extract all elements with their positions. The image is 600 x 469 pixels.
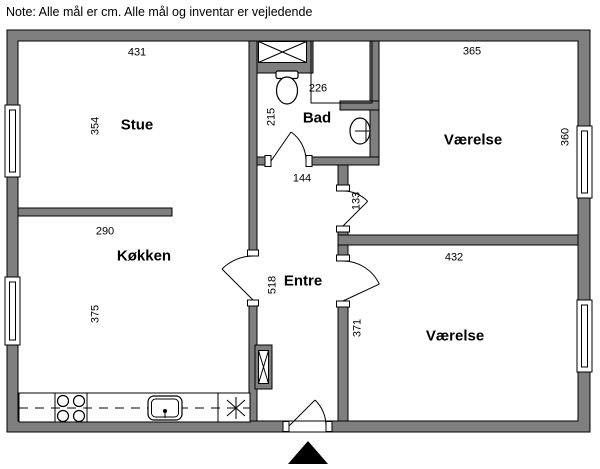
floor-plan-drawing xyxy=(0,0,600,469)
dim-entre-width: 144 xyxy=(293,174,311,185)
bathroom-sink-icon xyxy=(350,118,370,144)
toilet-icon xyxy=(276,71,298,104)
window-icon xyxy=(5,277,20,345)
dim-vaerelse-top-height: 360 xyxy=(561,128,572,146)
kitchen-sink-icon xyxy=(148,396,182,420)
dim-divider-wall: 290 xyxy=(96,227,114,238)
dim-vaerelse-bottom-height: 371 xyxy=(353,319,364,337)
dim-bad-height: 215 xyxy=(267,108,278,126)
dim-entre-length: 518 xyxy=(268,276,279,294)
room-label-kokken: Køkken xyxy=(117,249,171,264)
window-icon xyxy=(577,300,592,372)
room-bottom-door-arc xyxy=(343,261,379,301)
kitchen-counter xyxy=(19,393,250,422)
dim-stue-height: 354 xyxy=(91,117,102,135)
entrance-arrow-icon xyxy=(288,441,328,464)
duct-shaft-icon xyxy=(259,351,269,384)
dim-vaerelse-top-width: 365 xyxy=(463,47,481,58)
dim-kokken-height: 375 xyxy=(91,305,102,323)
room-label-entre: Entre xyxy=(284,274,322,289)
room-label-stue: Stue xyxy=(121,118,154,133)
room-label-bad: Bad xyxy=(303,111,331,126)
kitchen-door-arc xyxy=(222,256,253,300)
dim-vaerelse-bottom-width: 432 xyxy=(445,253,463,264)
floor-plan: Note: Alle mål er cm. Alle mål og invent… xyxy=(0,0,600,469)
bathroom-door-arc xyxy=(271,132,306,161)
window-icon xyxy=(577,126,592,198)
room-label-vaerelse-bottom: Værelse xyxy=(426,329,484,344)
note-text: Note: Alle mål er cm. Alle mål og invent… xyxy=(6,5,312,19)
room-label-vaerelse-top: Værelse xyxy=(444,133,502,148)
vent-shaft-icon xyxy=(259,42,307,63)
window-icon xyxy=(5,105,20,177)
entrance-door xyxy=(283,400,332,432)
outer-walls xyxy=(7,30,590,432)
dim-bad-width: 226 xyxy=(309,84,327,95)
dim-door-top-room: 133 xyxy=(352,192,363,210)
dim-stue-width: 431 xyxy=(128,48,146,59)
